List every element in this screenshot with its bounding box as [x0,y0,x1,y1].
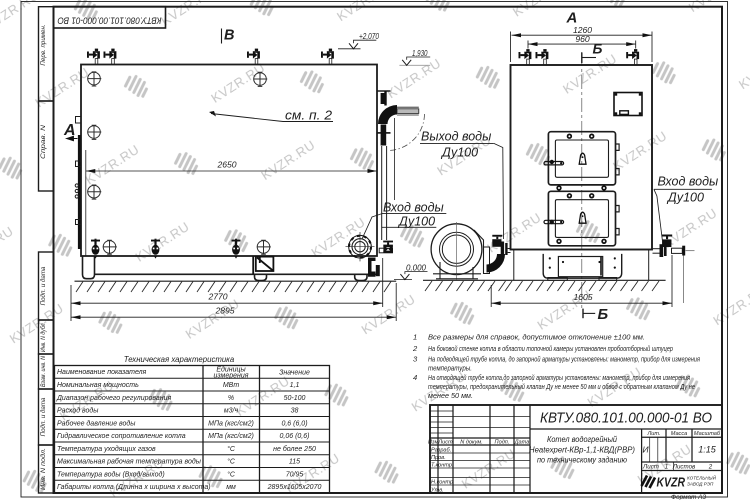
svg-text:2650: 2650 [216,160,236,170]
svg-text:Подп. и дата: Подп. и дата [40,266,47,305]
svg-text:Разраб.: Разраб. [431,448,451,454]
svg-text:Лист: Лист [437,440,453,446]
svg-text:N докум.: N докум. [460,440,483,446]
svg-text:Выход воды: Выход воды [421,130,491,144]
svg-text:1,1: 1,1 [290,382,300,389]
svg-text:Техническая характеристика: Техническая характеристика [124,355,235,364]
svg-text:0.000: 0.000 [406,262,426,272]
svg-text:°С: °С [227,445,236,453]
svg-text:КОТЕЛЬНЫЙ: КОТЕЛЬНЫЙ [687,474,717,481]
svg-text:Лит.: Лит. [646,431,660,437]
svg-text:Масса: Масса [671,431,688,437]
svg-text:38: 38 [291,408,299,415]
svg-text:измерения: измерения [213,373,248,380]
svg-text:Значение: Значение [279,370,310,377]
svg-text:Подп. и дата: Подп. и дата [40,397,47,436]
svg-text:менее 50 мм.: менее 50 мм. [428,391,473,400]
svg-text:1605: 1605 [573,292,592,302]
svg-text:Вход воды: Вход воды [658,174,719,188]
svg-text:2895х1605х2070: 2895х1605х2070 [267,484,322,491]
svg-text:70/95: 70/95 [286,471,304,478]
svg-text:Наименование показателя: Наименование показателя [57,369,147,376]
svg-text:МПа (кгс/см2): МПа (кгс/см2) [208,420,254,427]
svg-text:2: 2 [412,344,418,353]
svg-text:Все размеры для справок, допус: Все размеры для справок, допустимое откл… [428,333,645,342]
svg-text:не более 250: не более 250 [273,445,316,453]
svg-text:КВТУ.080.101.00.000-01 ВО: КВТУ.080.101.00.000-01 ВО [58,15,162,25]
svg-text:И: И [643,445,650,455]
svg-text:КВТУ.080.101.00.000-01 ВО: КВТУ.080.101.00.000-01 ВО [540,410,712,427]
svg-text:2770: 2770 [207,292,227,302]
svg-text:Вход воды: Вход воды [383,200,444,214]
svg-text:0,6 (6,0): 0,6 (6,0) [281,420,307,427]
svg-text:Дата: Дата [514,440,530,446]
svg-text:Инв. N подл.: Инв. N подл. [40,448,47,490]
svg-text:МВт: МВт [223,382,240,389]
svg-text:%: % [228,395,234,402]
svg-text:Инв. N дубл.: Инв. N дубл. [40,322,47,352]
svg-text:Формат А3: Формат А3 [671,494,706,500]
svg-text:На боковой стенке котла в обла: На боковой стенке котла в области топочн… [428,344,673,353]
svg-text:температуры, предохранительный: температуры, предохранительный клапан Ду… [428,382,695,391]
svg-text:На отводящей трубе котла,до за: На отводящей трубе котла,до запорной арм… [428,373,690,382]
svg-text:Б: Б [598,306,609,323]
svg-text:см. п. 2: см. п. 2 [285,109,332,123]
svg-text:1,930: 1,930 [412,48,428,58]
svg-text:Справ. N: Справ. N [40,124,47,159]
svg-text:температуры.: температуры. [428,363,472,372]
svg-text:Б: Б [593,41,603,57]
svg-text:м3/ч: м3/ч [224,408,239,415]
svg-text:Т.контр.: Т.контр. [431,463,454,469]
svg-text:1: 1 [413,333,417,342]
svg-text:KVZR: KVZR [657,475,686,490]
svg-text:0,06 (0,6): 0,06 (0,6) [280,433,310,440]
svg-text:мм: мм [226,484,236,491]
svg-text:960: 960 [575,34,590,44]
svg-text:Габариты котла (Длинна х ширин: Габариты котла (Длинна х ширина х высота… [57,483,211,491]
svg-text:На подводящей трубе котла, д: На подводящей трубе котла, до запорной а… [428,354,700,363]
svg-text:Heatexpert-КВр-1,1-КВД(РВР): Heatexpert-КВр-1,1-КВД(РВР) [529,446,635,455]
svg-text:ЗАВОД РЭП: ЗАВОД РЭП [687,482,714,487]
svg-text:Гидравлическое сопротивление к: Гидравлическое сопротивление котла [57,432,186,440]
svg-text:Лист: Лист [642,464,659,471]
svg-text:Н.контр: Н.контр [431,480,453,486]
svg-text:Максимальная рабочая температу: Максимальная рабочая температура воды [57,458,202,466]
svg-text:Перв. примен.: Перв. примен. [40,24,47,65]
svg-text:+2,070: +2,070 [359,31,379,41]
svg-text:Ду100: Ду100 [440,146,478,160]
svg-text:Рабочее давление воды: Рабочее давление воды [57,419,136,427]
svg-text:по техническому заданию: по техническому заданию [537,456,627,465]
svg-text:Диапазон рабочего регулировани: Диапазон рабочего регулирования [56,394,172,402]
svg-text:Утв.: Утв. [430,488,444,494]
svg-text:Температура воды (Вход/выход): Температура воды (Вход/выход) [57,470,165,478]
svg-text:Листов: Листов [672,464,696,471]
svg-text:Масштаб: Масштаб [694,431,721,437]
svg-text:115: 115 [289,459,300,466]
svg-text:°С: °С [227,458,236,466]
svg-text:Ду100: Ду100 [666,190,704,204]
svg-text:В: В [224,28,234,44]
svg-text:Номинальная мощность: Номинальная мощность [57,382,139,389]
svg-text:Ду100: Ду100 [397,214,435,228]
svg-text:4: 4 [413,373,417,382]
svg-text:Взам. инв. N: Взам. инв. N [40,356,47,387]
svg-text:МПа (кгс/см2): МПа (кгс/см2) [208,433,254,440]
svg-text:Подп.: Подп. [495,440,510,446]
svg-text:2895: 2895 [214,306,234,316]
svg-text:Температура уходящих газов: Температура уходящих газов [57,445,156,453]
svg-text:1:15: 1:15 [698,445,717,455]
svg-text:Расход воды: Расход воды [57,407,99,415]
svg-text:50-100: 50-100 [284,395,306,402]
svg-text:1: 1 [665,464,668,471]
svg-text:Котел водогрейный: Котел водогрейный [547,435,617,444]
svg-text:2: 2 [708,464,713,471]
svg-text:Пров.: Пров. [431,455,446,461]
svg-text:°С: °С [227,470,236,478]
